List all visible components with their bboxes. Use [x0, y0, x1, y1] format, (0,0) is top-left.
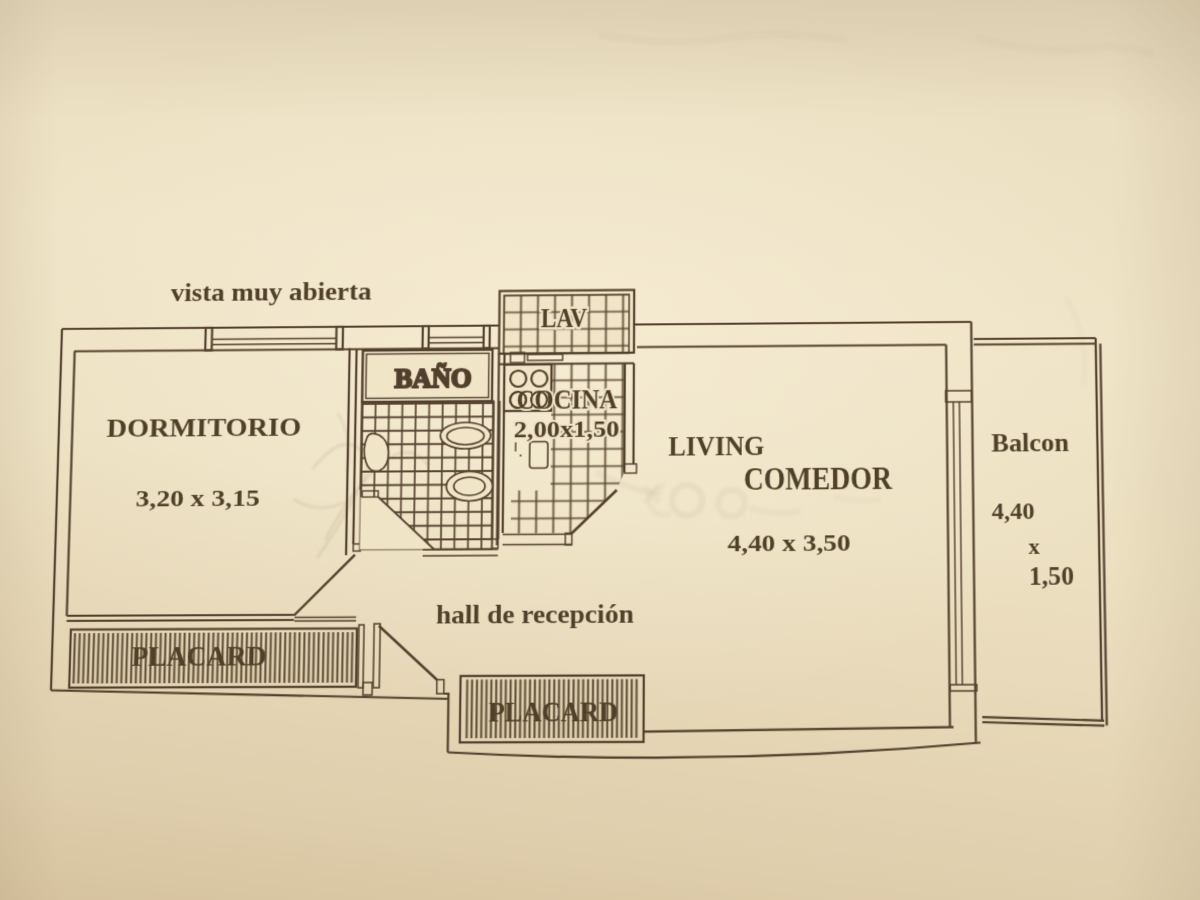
svg-text:1,50: 1,50 — [1029, 562, 1075, 591]
svg-text:LAV: LAV — [541, 302, 588, 333]
svg-text:2,00x1,50: 2,00x1,50 — [514, 416, 620, 444]
svg-text:hall de recepción: hall de recepción — [436, 600, 634, 629]
svg-text:DORMITORIO: DORMITORIO — [106, 414, 301, 443]
svg-text:Balcon: Balcon — [991, 429, 1069, 458]
svg-text:4,40 x 3,50: 4,40 x 3,50 — [728, 529, 851, 557]
svg-text:LIVING: LIVING — [668, 430, 764, 462]
svg-text:PLACARD: PLACARD — [131, 640, 267, 672]
svg-text:BAÑO: BAÑO — [394, 362, 472, 394]
svg-text:4,40: 4,40 — [992, 498, 1035, 526]
svg-text:3,20 x 3,15: 3,20 x 3,15 — [135, 485, 260, 512]
svg-text:COMEDOR: COMEDOR — [744, 461, 893, 498]
svg-text:vista muy abierta: vista muy abierta — [171, 278, 372, 307]
svg-text:PLACARD: PLACARD — [488, 695, 618, 728]
svg-text:x: x — [1028, 534, 1040, 560]
